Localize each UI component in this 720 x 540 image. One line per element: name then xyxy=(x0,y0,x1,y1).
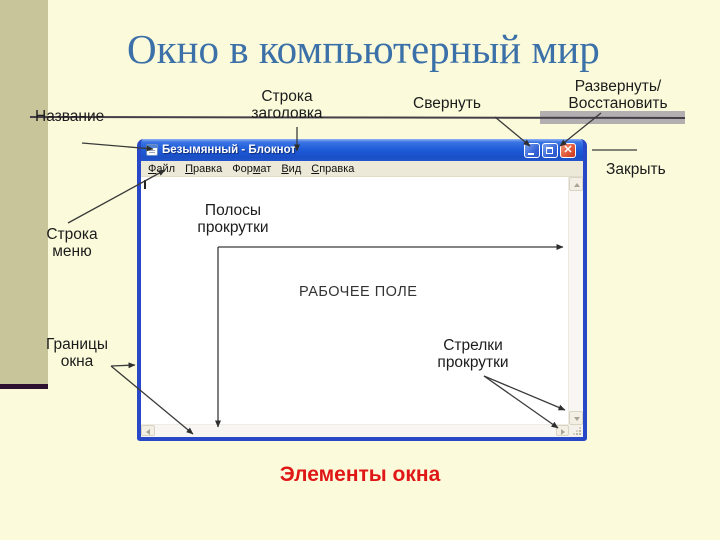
label-strelki-prokrutki: Стрелки прокрутки xyxy=(423,337,523,371)
menu-item-format[interactable]: Формат xyxy=(227,163,276,175)
text-caret xyxy=(144,180,146,189)
menu-item-file[interactable]: Файл xyxy=(143,163,180,175)
maximize-icon xyxy=(546,147,553,154)
arrow-up-icon xyxy=(574,183,580,187)
scroll-left-button[interactable] xyxy=(141,425,155,436)
label-stroka-menyu: Строка меню xyxy=(32,226,112,260)
minimize-button[interactable] xyxy=(524,143,540,158)
label-zakryt: Закрыть xyxy=(606,161,666,178)
close-button[interactable]: ✕ xyxy=(560,143,576,158)
arrow-right-icon xyxy=(561,429,565,435)
label-stroka-zagolovka: Строка заголовка xyxy=(237,88,337,122)
slide-caption: Элементы окна xyxy=(0,463,720,487)
stripe-underline xyxy=(0,384,48,389)
window-buttons: ✕ xyxy=(524,143,576,158)
scroll-up-button[interactable] xyxy=(569,177,583,191)
arrow-left-icon xyxy=(146,429,150,435)
label-rabochee-pole: РАБОЧЕЕ ПОЛЕ xyxy=(299,284,417,301)
resize-grip[interactable] xyxy=(569,425,583,437)
scroll-right-button[interactable] xyxy=(556,425,569,436)
close-icon: ✕ xyxy=(561,144,575,157)
label-nazvanie: Название xyxy=(35,108,104,125)
vertical-scrollbar[interactable] xyxy=(568,177,583,425)
design-gray-bar xyxy=(540,111,685,124)
menu-item-view[interactable]: Вид xyxy=(276,163,306,175)
label-razvernut-vosstanovit: Развернуть/ Восстановить xyxy=(553,78,683,112)
slide: Окно в компьютерный мир Безымянный - Бло… xyxy=(0,0,720,540)
maximize-button[interactable] xyxy=(542,143,558,158)
menu-item-help[interactable]: Справка xyxy=(306,163,359,175)
title-bar[interactable]: Безымянный - Блокнот ✕ xyxy=(141,139,583,161)
label-svernut: Свернуть xyxy=(402,95,492,112)
window-title: Безымянный - Блокнот xyxy=(162,144,524,156)
page-title: Окно в компьютерный мир xyxy=(127,27,582,72)
arrow-down-icon xyxy=(574,417,580,421)
horizontal-scrollbar[interactable] xyxy=(141,424,569,437)
minimize-icon xyxy=(528,153,534,155)
label-polosy-prokrutki: Полосы прокрутки xyxy=(183,202,283,236)
label-granitsy-okna: Границы окна xyxy=(37,336,117,370)
left-stripe xyxy=(0,0,48,385)
notepad-icon xyxy=(146,144,158,156)
scroll-down-button[interactable] xyxy=(569,411,583,425)
menu-item-edit[interactable]: Правка xyxy=(180,163,227,175)
menu-bar: Файл Правка Формат Вид Справка xyxy=(141,161,583,177)
